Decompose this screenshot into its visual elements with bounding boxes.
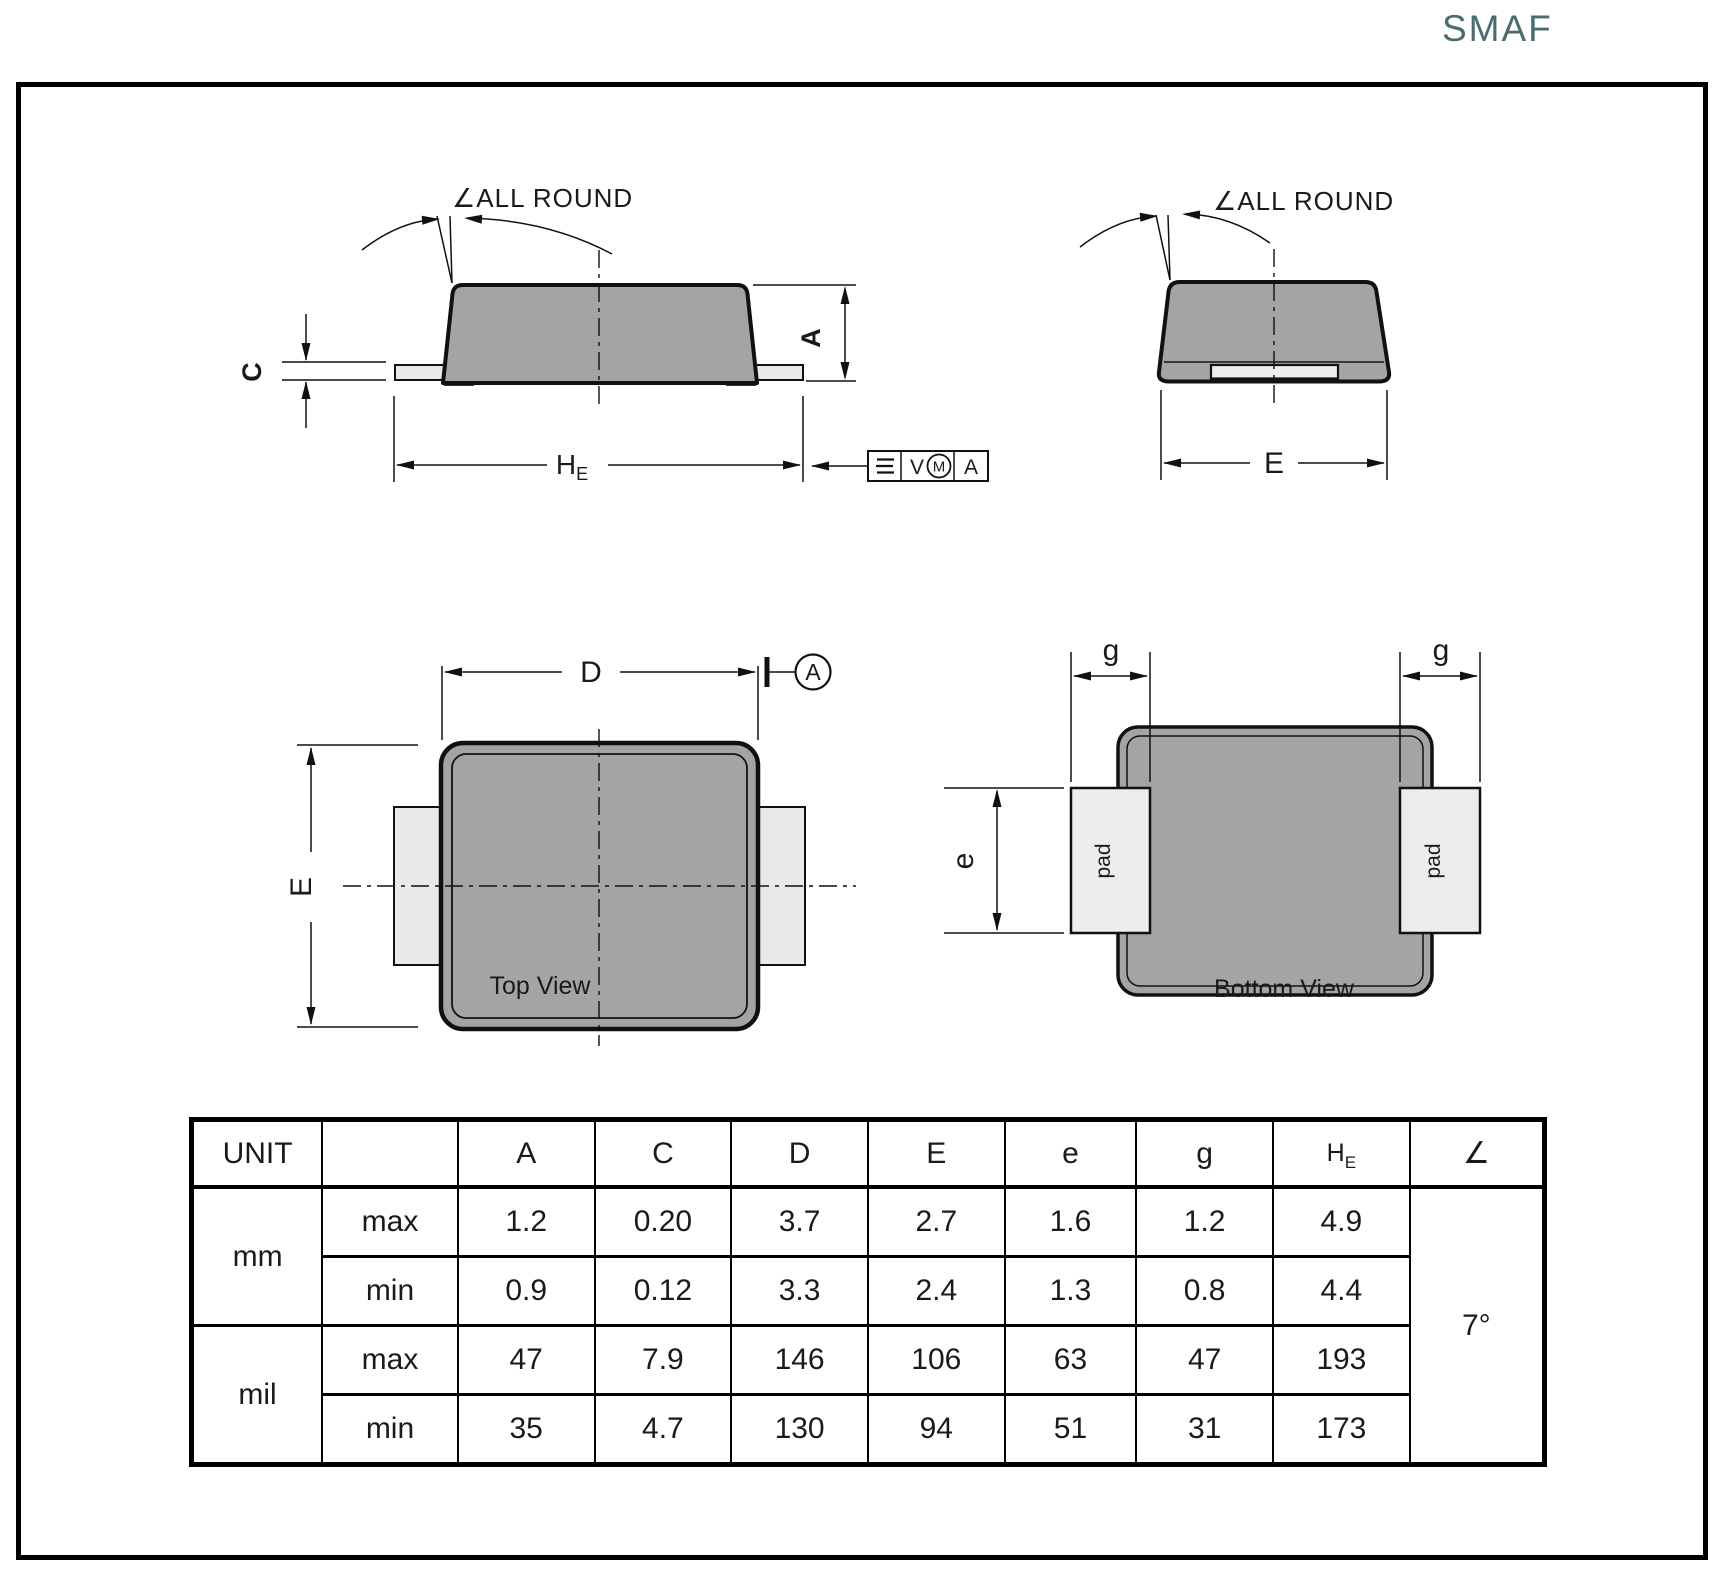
- unit-mm: mm: [192, 1187, 323, 1326]
- cell-mil-max-A: 47: [458, 1326, 595, 1395]
- row-label: min: [322, 1395, 458, 1465]
- table-row-mil-max: mil max 47 7.9 146 106 63 47 193: [192, 1326, 1545, 1395]
- cell-mil-max-g: 47: [1136, 1326, 1273, 1395]
- front-he-label: HE: [556, 449, 588, 484]
- end-e-arrow-left: [1163, 459, 1181, 468]
- cell-mm-min-A: 0.9: [458, 1257, 595, 1326]
- cell-mm-min-g: 0.8: [1136, 1257, 1273, 1326]
- cell-mil-max-HE: 193: [1273, 1326, 1410, 1395]
- cell-mil-min-A: 35: [458, 1395, 595, 1465]
- cell-mm-max-HE: 4.9: [1273, 1187, 1410, 1257]
- cell-mil-min-E: 94: [868, 1395, 1005, 1465]
- dimension-table-container: UNIT A C D E e g HE ∠ mm max 1.2 0.20 3.…: [189, 1117, 1547, 1467]
- top-d-arrow-right: [738, 668, 756, 677]
- bottom-gl-label: g: [1103, 634, 1120, 667]
- cell-mm-min-E: 2.4: [868, 1257, 1005, 1326]
- cell-angle-value: 7°: [1410, 1187, 1545, 1465]
- row-label: min: [322, 1257, 458, 1326]
- cell-mil-min-g: 31: [1136, 1395, 1273, 1465]
- bottom-e-arrow-down: [993, 913, 1002, 931]
- front-c-arrow-up: [302, 381, 311, 399]
- front-a-arrow-down: [841, 362, 850, 380]
- bottom-gr-arrow-right: [1460, 672, 1478, 681]
- header-angle: ∠: [1410, 1120, 1545, 1188]
- top-d-arrow-left: [444, 668, 462, 677]
- dimension-table: UNIT A C D E e g HE ∠ mm max 1.2 0.20 3.…: [189, 1117, 1547, 1467]
- front-he-arrow-left: [396, 461, 414, 470]
- front-he-arrow-right: [783, 461, 801, 470]
- top-e-arrow-up: [307, 747, 316, 765]
- top-d-label: D: [580, 656, 602, 689]
- bottom-gr-arrow-left: [1402, 672, 1420, 681]
- front-angle-arrow-right: [464, 214, 483, 224]
- row-label: max: [322, 1326, 458, 1395]
- bottom-body: [1118, 727, 1432, 995]
- cell-mil-max-e: 63: [1005, 1326, 1137, 1395]
- cell-mil-max-D: 146: [731, 1326, 868, 1395]
- end-angle-arrow-left: [1140, 212, 1159, 222]
- bottom-pad-left-label: pad: [1092, 843, 1115, 878]
- end-e-label: E: [1264, 447, 1284, 480]
- front-view: ∠ALL ROUND C A: [237, 183, 988, 484]
- cell-mil-min-e: 51: [1005, 1395, 1137, 1465]
- header-C: C: [595, 1120, 732, 1188]
- top-view: D A E Top View: [285, 655, 856, 1047]
- fcf-modifier: M: [933, 459, 946, 476]
- front-a-label: A: [796, 328, 826, 348]
- header-unit: UNIT: [192, 1120, 323, 1188]
- front-c-label: C: [237, 362, 267, 382]
- bottom-gl-arrow-right: [1130, 672, 1148, 681]
- cell-mm-max-g: 1.2: [1136, 1187, 1273, 1257]
- bottom-view-caption: Bottom View: [1214, 975, 1355, 1003]
- cell-mm-min-D: 3.3: [731, 1257, 868, 1326]
- end-e-arrow-right: [1367, 459, 1385, 468]
- datasheet-page: SMAF ∠ALL ROUND: [0, 0, 1732, 1581]
- bottom-e-arrow-up: [993, 789, 1002, 807]
- table-row-mm-max: mm max 1.2 0.20 3.7 2.7 1.6 1.2 4.9 7°: [192, 1187, 1545, 1257]
- cell-mil-min-D: 130: [731, 1395, 868, 1465]
- cell-mm-max-D: 3.7: [731, 1187, 868, 1257]
- header-empty: [322, 1120, 458, 1188]
- cell-mm-max-A: 1.2: [458, 1187, 595, 1257]
- fcf-leader-arrow: [811, 462, 829, 471]
- cell-mil-max-C: 7.9: [595, 1326, 732, 1395]
- header-e: e: [1005, 1120, 1137, 1188]
- bottom-pad-right-label: pad: [1422, 843, 1445, 878]
- bottom-e-label: e: [947, 853, 980, 870]
- front-c-arrow-down: [302, 343, 311, 361]
- cell-mil-max-E: 106: [868, 1326, 1005, 1395]
- cell-mm-max-C: 0.20: [595, 1187, 732, 1257]
- header-D: D: [731, 1120, 868, 1188]
- bottom-gr-label: g: [1433, 634, 1450, 667]
- fcf-datum: A: [964, 456, 978, 479]
- table-row-mm-min: min 0.9 0.12 3.3 2.4 1.3 0.8 4.4: [192, 1257, 1545, 1326]
- cell-mm-max-E: 2.7: [868, 1187, 1005, 1257]
- row-label: max: [322, 1187, 458, 1257]
- end-view: ∠ALL ROUND E: [1080, 186, 1394, 480]
- table-header-row: UNIT A C D E e g HE ∠: [192, 1120, 1545, 1188]
- cell-mm-min-e: 1.3: [1005, 1257, 1137, 1326]
- top-e-arrow-down: [307, 1007, 316, 1025]
- front-a-arrow-up: [841, 286, 850, 304]
- header-HE: HE: [1273, 1120, 1410, 1188]
- bottom-gl-arrow-left: [1073, 672, 1091, 681]
- front-allround-label: ∠ALL ROUND: [452, 183, 633, 213]
- end-allround-label: ∠ALL ROUND: [1213, 186, 1394, 216]
- top-e-label: E: [285, 877, 318, 897]
- top-datum-label: A: [805, 659, 821, 685]
- cell-mm-max-e: 1.6: [1005, 1187, 1137, 1257]
- front-body: [443, 285, 757, 383]
- cell-mm-min-HE: 4.4: [1273, 1257, 1410, 1326]
- header-A: A: [458, 1120, 595, 1188]
- end-angle-arrow-right: [1182, 210, 1200, 220]
- unit-mil: mil: [192, 1326, 323, 1465]
- header-E: E: [868, 1120, 1005, 1188]
- cell-mil-min-HE: 173: [1273, 1395, 1410, 1465]
- header-g: g: [1136, 1120, 1273, 1188]
- fcf-tolerance: V: [910, 456, 924, 479]
- front-angle-arc-right: [468, 218, 612, 254]
- table-row-mil-min: min 35 4.7 130 94 51 31 173: [192, 1395, 1545, 1465]
- cell-mil-min-C: 4.7: [595, 1395, 732, 1465]
- bottom-view: pad pad g g e Bottom View: [944, 634, 1480, 1003]
- top-view-caption: Top View: [490, 972, 592, 1000]
- cell-mm-min-C: 0.12: [595, 1257, 732, 1326]
